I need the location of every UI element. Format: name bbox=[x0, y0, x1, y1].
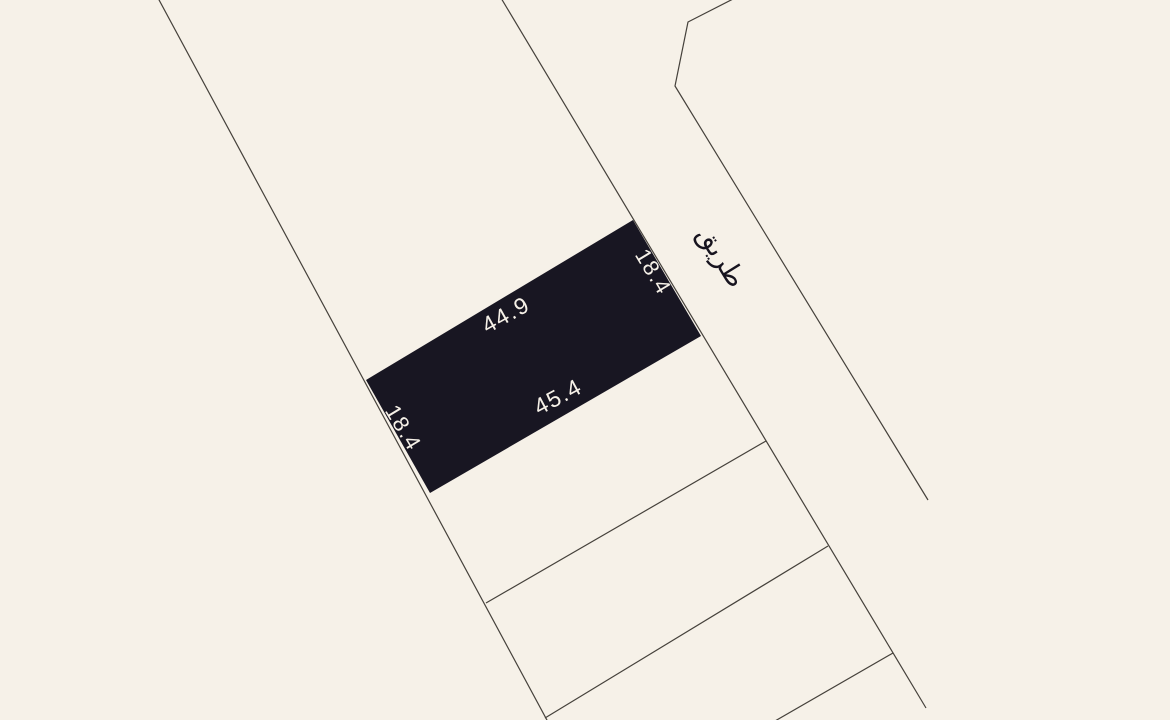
road-east-line bbox=[675, 0, 928, 500]
parcel-divider-line-c bbox=[775, 653, 893, 720]
parcel-divider-line-a bbox=[486, 441, 766, 603]
parcel-map bbox=[0, 0, 1170, 720]
selected-plot-polygon[interactable] bbox=[366, 220, 701, 493]
parcel-divider-line-b bbox=[545, 546, 828, 718]
plot-map-canvas[interactable]: 44.9 45.4 18.4 18.4 طريق bbox=[0, 0, 1170, 720]
